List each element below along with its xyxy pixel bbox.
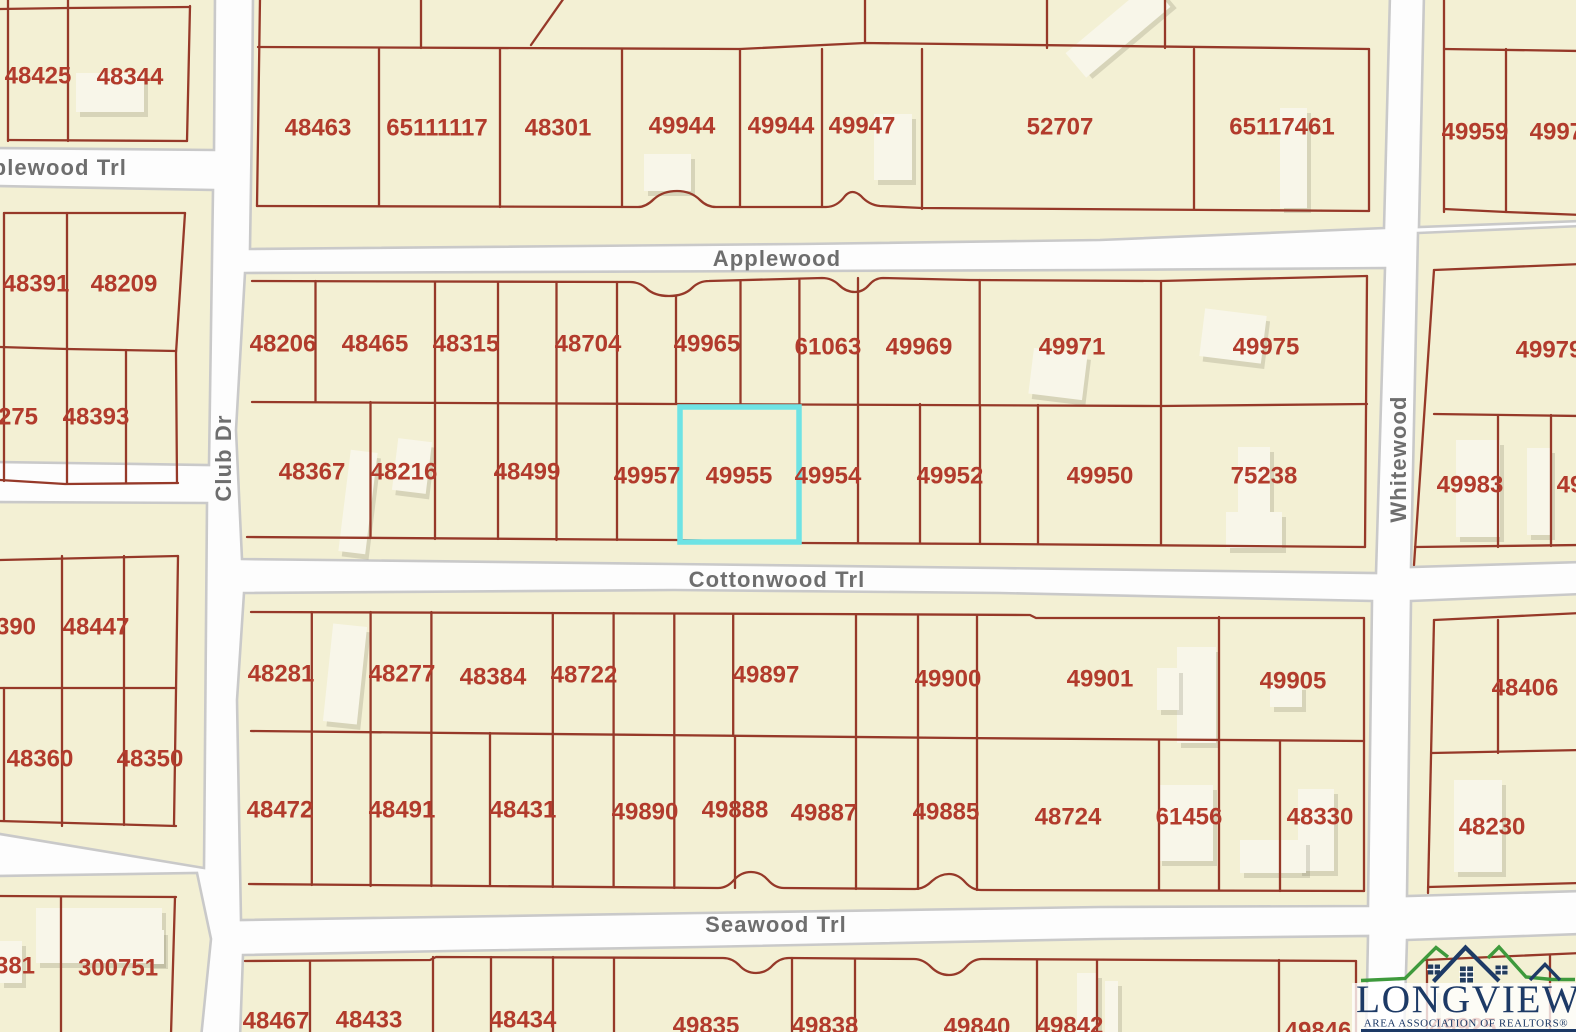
svg-text:49969: 49969 xyxy=(886,334,953,361)
svg-text:48230: 48230 xyxy=(1459,814,1526,841)
svg-text:48216: 48216 xyxy=(371,459,438,486)
svg-text:381: 381 xyxy=(0,953,35,980)
svg-text:49975: 49975 xyxy=(1233,334,1300,361)
svg-text:49905: 49905 xyxy=(1260,668,1327,695)
svg-text:49835: 49835 xyxy=(673,1013,740,1032)
svg-text:48391: 48391 xyxy=(3,271,70,298)
svg-text:48425: 48425 xyxy=(5,63,72,90)
svg-text:Seawood Trl: Seawood Trl xyxy=(705,912,847,937)
svg-text:48281: 48281 xyxy=(248,661,315,688)
svg-text:48360: 48360 xyxy=(7,746,74,773)
svg-text:275: 275 xyxy=(0,404,38,431)
svg-text:48465: 48465 xyxy=(342,331,409,358)
svg-text:49979: 49979 xyxy=(1516,337,1576,364)
svg-text:48350: 48350 xyxy=(117,746,184,773)
svg-text:48330: 48330 xyxy=(1287,804,1354,831)
svg-text:390: 390 xyxy=(0,614,36,641)
svg-text:48491: 48491 xyxy=(369,797,436,824)
svg-text:49900: 49900 xyxy=(915,666,982,693)
svg-text:49954: 49954 xyxy=(795,463,862,490)
svg-text:48393: 48393 xyxy=(63,404,130,431)
svg-text:48367: 48367 xyxy=(279,459,346,486)
svg-text:49965: 49965 xyxy=(674,331,741,358)
svg-text:61063: 61063 xyxy=(795,334,862,361)
svg-text:48384: 48384 xyxy=(460,664,527,691)
svg-text:48434: 48434 xyxy=(490,1007,557,1032)
svg-text:48277: 48277 xyxy=(369,661,436,688)
svg-text:48447: 48447 xyxy=(63,614,130,641)
svg-text:49971: 49971 xyxy=(1530,119,1576,146)
svg-text:49950: 49950 xyxy=(1067,463,1134,490)
svg-text:49987: 49987 xyxy=(1557,472,1576,499)
svg-text:49888: 49888 xyxy=(702,797,769,824)
svg-text:49885: 49885 xyxy=(913,799,980,826)
svg-text:Whitewood: Whitewood xyxy=(1386,395,1411,522)
svg-text:300751: 300751 xyxy=(78,955,158,982)
svg-text:48463: 48463 xyxy=(285,115,352,142)
svg-text:Applewood Trl: Applewood Trl xyxy=(0,155,127,180)
svg-text:49842: 49842 xyxy=(1037,1013,1104,1032)
svg-text:Club Dr: Club Dr xyxy=(211,414,236,501)
svg-text:48724: 48724 xyxy=(1035,804,1102,831)
svg-text:48433: 48433 xyxy=(336,1007,403,1032)
svg-text:75238: 75238 xyxy=(1231,463,1298,490)
svg-text:48206: 48206 xyxy=(250,331,317,358)
svg-text:49952: 49952 xyxy=(917,463,984,490)
svg-text:AREA ASSOCIATION OF REALTORS®: AREA ASSOCIATION OF REALTORS® xyxy=(1364,1018,1569,1030)
svg-text:49971: 49971 xyxy=(1039,334,1106,361)
svg-text:61456: 61456 xyxy=(1156,804,1223,831)
svg-text:48301: 48301 xyxy=(525,115,592,142)
svg-text:49944: 49944 xyxy=(748,113,815,140)
svg-text:49887: 49887 xyxy=(791,800,858,827)
svg-text:49944: 49944 xyxy=(649,113,716,140)
svg-text:49957: 49957 xyxy=(614,463,681,490)
svg-text:48431: 48431 xyxy=(490,797,557,824)
svg-text:49897: 49897 xyxy=(733,662,800,689)
svg-text:48467: 48467 xyxy=(243,1008,310,1032)
svg-text:48499: 48499 xyxy=(494,459,561,486)
svg-text:48344: 48344 xyxy=(97,64,164,91)
svg-text:49838: 49838 xyxy=(792,1013,859,1032)
svg-text:49901: 49901 xyxy=(1067,666,1134,693)
svg-text:Applewood: Applewood xyxy=(713,246,841,271)
svg-text:48315: 48315 xyxy=(433,331,500,358)
svg-text:48406: 48406 xyxy=(1492,675,1559,702)
svg-text:49955: 49955 xyxy=(706,463,773,490)
svg-text:49959: 49959 xyxy=(1442,119,1509,146)
svg-text:49840: 49840 xyxy=(944,1014,1011,1032)
svg-text:65111117: 65111117 xyxy=(386,115,487,142)
svg-text:49983: 49983 xyxy=(1437,472,1504,499)
svg-text:Cottonwood Trl: Cottonwood Trl xyxy=(689,567,866,592)
svg-text:LONGVIEW: LONGVIEW xyxy=(1356,977,1576,1021)
svg-text:49890: 49890 xyxy=(612,799,679,826)
svg-text:48704: 48704 xyxy=(555,331,622,358)
svg-text:49947: 49947 xyxy=(829,113,896,140)
svg-text:48472: 48472 xyxy=(247,797,314,824)
svg-text:65117461: 65117461 xyxy=(1229,114,1334,141)
svg-text:48209: 48209 xyxy=(91,271,158,298)
svg-text:48722: 48722 xyxy=(551,662,618,689)
svg-text:52707: 52707 xyxy=(1027,114,1094,141)
svg-text:49846: 49846 xyxy=(1285,1018,1352,1032)
